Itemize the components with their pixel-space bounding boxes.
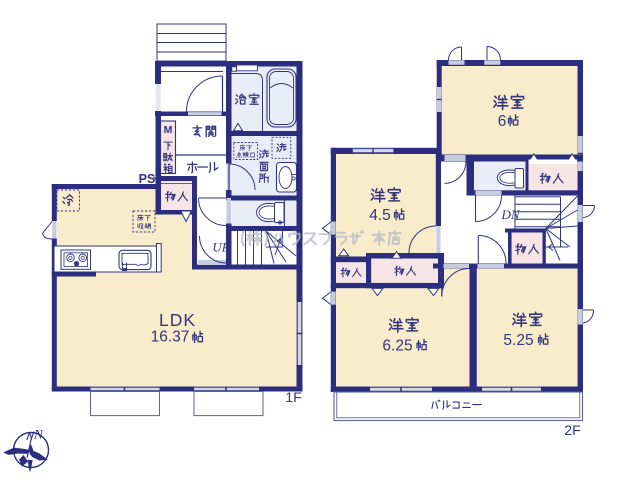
svg-text:N: N (33, 427, 44, 442)
svg-text:6: 6 (498, 113, 507, 130)
svg-text:1F: 1F (285, 390, 302, 406)
svg-text:6.25: 6.25 (382, 337, 412, 354)
svg-text:16.37: 16.37 (151, 329, 190, 346)
svg-text:5.25: 5.25 (503, 332, 533, 349)
svg-text:4.5: 4.5 (369, 207, 391, 224)
svg-text:PS: PS (139, 172, 156, 186)
svg-text:LDK: LDK (159, 310, 196, 330)
svg-text:M: M (164, 124, 173, 136)
svg-text:DN: DN (500, 207, 520, 222)
svg-text:UP: UP (212, 240, 229, 255)
svg-text:2F: 2F (564, 423, 581, 439)
